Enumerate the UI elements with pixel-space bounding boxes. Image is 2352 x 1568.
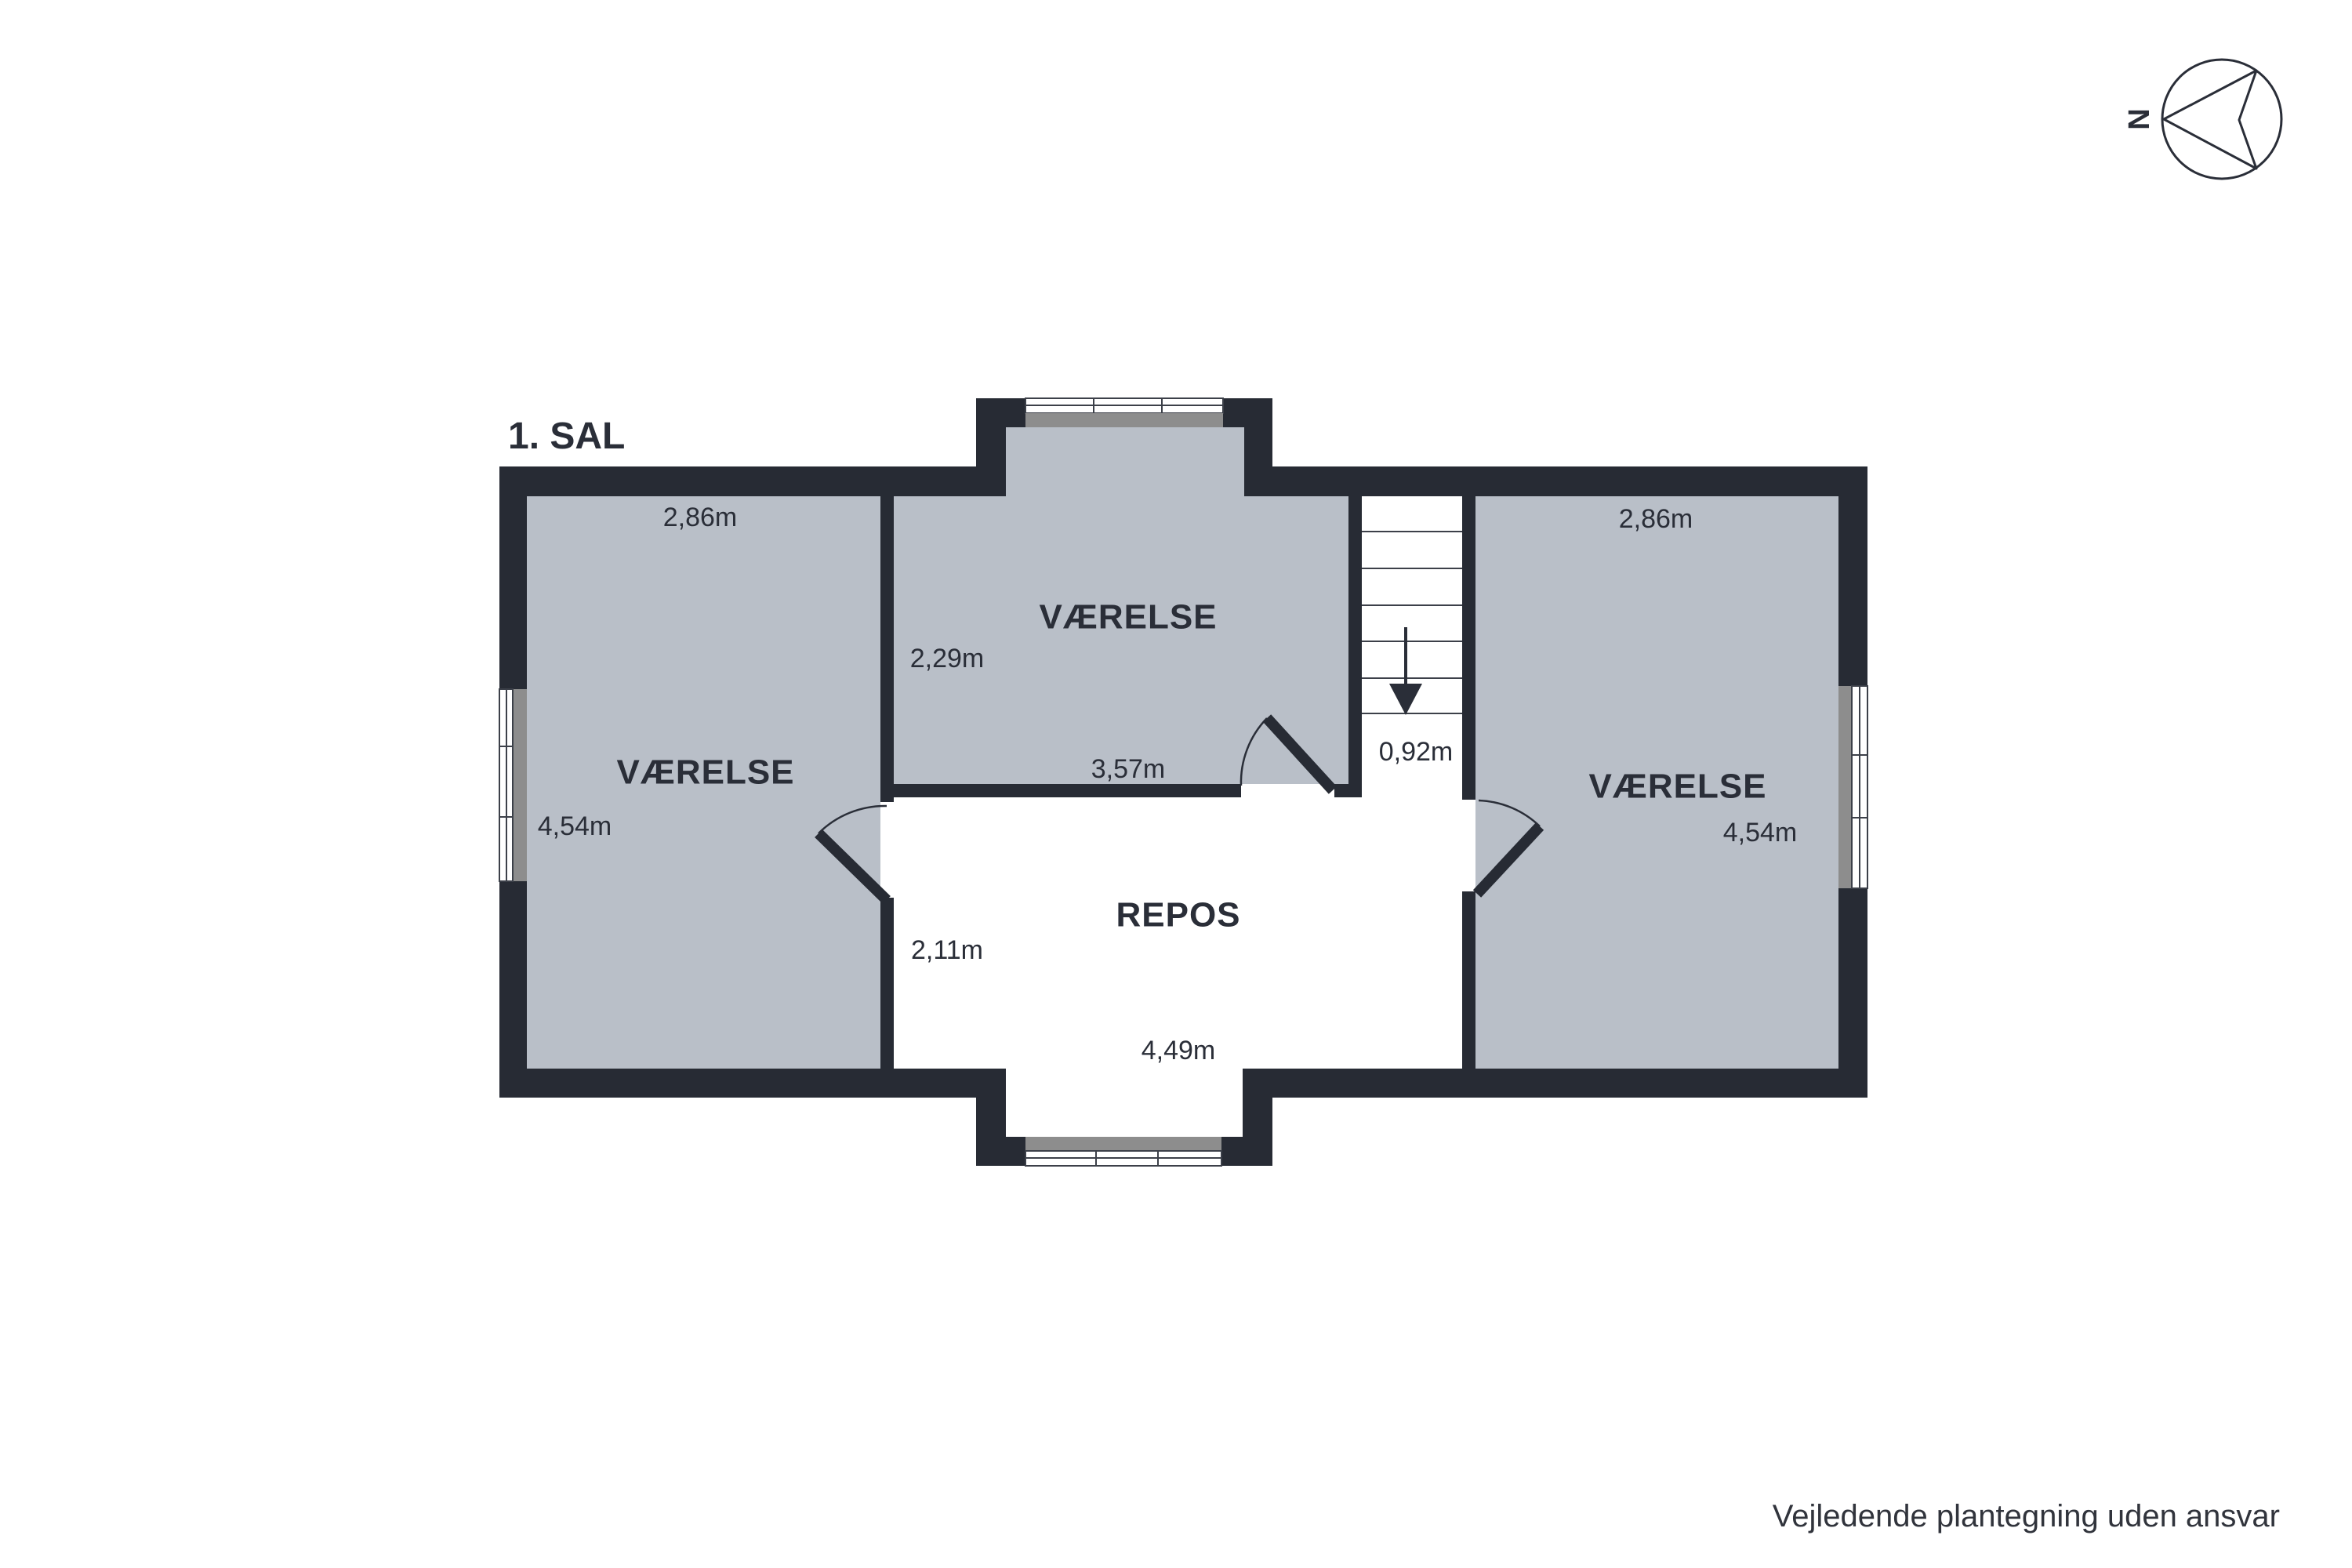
dim-left-width: 2,86m: [663, 503, 738, 532]
room-label-right: VÆRELSE: [1588, 768, 1766, 806]
compass-circle: [2162, 60, 2281, 179]
wall-segment: [1462, 496, 1475, 800]
wall-segment: [499, 1069, 976, 1098]
wall-segment: [880, 496, 894, 802]
window-sill: [513, 689, 527, 881]
window-left: [499, 689, 527, 881]
window-right: [1838, 686, 1867, 888]
disclaimer-text: Vejledende plantegning uden ansvar: [1773, 1499, 2280, 1534]
wall-segment: [1244, 398, 1272, 496]
wall-segment: [499, 466, 527, 689]
wall-segment: [976, 1069, 1006, 1166]
room-middle-bay-floor: [1006, 427, 1244, 502]
floor-title: 1. SAL: [508, 416, 625, 457]
dim-repos-depth: 2,11m: [911, 935, 983, 965]
wall-segment: [1838, 888, 1867, 1098]
compass-north-label: N: [2123, 108, 2156, 129]
dim-right-width: 2,86m: [1619, 504, 1693, 534]
wall-segment: [1272, 1069, 1867, 1098]
wall-segment: [499, 466, 976, 496]
wall-segment: [1838, 466, 1867, 686]
dim-middle-depth: 2,29m: [910, 644, 985, 673]
window-sill: [1838, 686, 1852, 888]
wall-segment: [1223, 398, 1244, 427]
dim-left-depth: 4,54m: [538, 811, 612, 841]
wall-segment: [1221, 1137, 1243, 1166]
staircase: [1362, 532, 1462, 715]
compass: N: [2123, 60, 2281, 179]
wall-segment: [1462, 891, 1475, 1069]
dim-repos-width: 4,49m: [1142, 1036, 1216, 1065]
wall-segment: [1006, 398, 1025, 427]
wall-segment: [499, 881, 527, 1098]
wall-segment: [1272, 466, 1867, 496]
wall-segment: [1348, 496, 1362, 797]
north-arrow-icon: [2164, 71, 2256, 169]
window-bottom-bay: [1025, 1137, 1221, 1166]
window-sill: [1025, 413, 1223, 427]
dim-right-depth: 4,54m: [1723, 818, 1798, 848]
dim-stairs-width: 0,92m: [1379, 737, 1454, 767]
room-label-middle: VÆRELSE: [1039, 598, 1217, 637]
wall-segment: [880, 898, 894, 1069]
floor-plan: N 1. SAL VÆRELSE VÆRELSE VÆRELSE REPOS 2…: [0, 0, 2352, 1568]
wall-segment: [976, 398, 1006, 496]
wall-segment: [894, 784, 1241, 797]
window-top-bay: [1025, 398, 1223, 427]
floor-plan-page: N 1. SAL VÆRELSE VÆRELSE VÆRELSE REPOS 2…: [0, 0, 2352, 1568]
room-label-left: VÆRELSE: [616, 753, 794, 792]
wall-segment: [1243, 1069, 1272, 1166]
stair-direction-arrow-icon: [1389, 627, 1422, 715]
window-sill: [1025, 1137, 1221, 1151]
room-label-repos: REPOS: [1116, 896, 1240, 935]
dim-middle-width: 3,57m: [1091, 754, 1166, 784]
wall-segment: [1006, 1137, 1025, 1166]
